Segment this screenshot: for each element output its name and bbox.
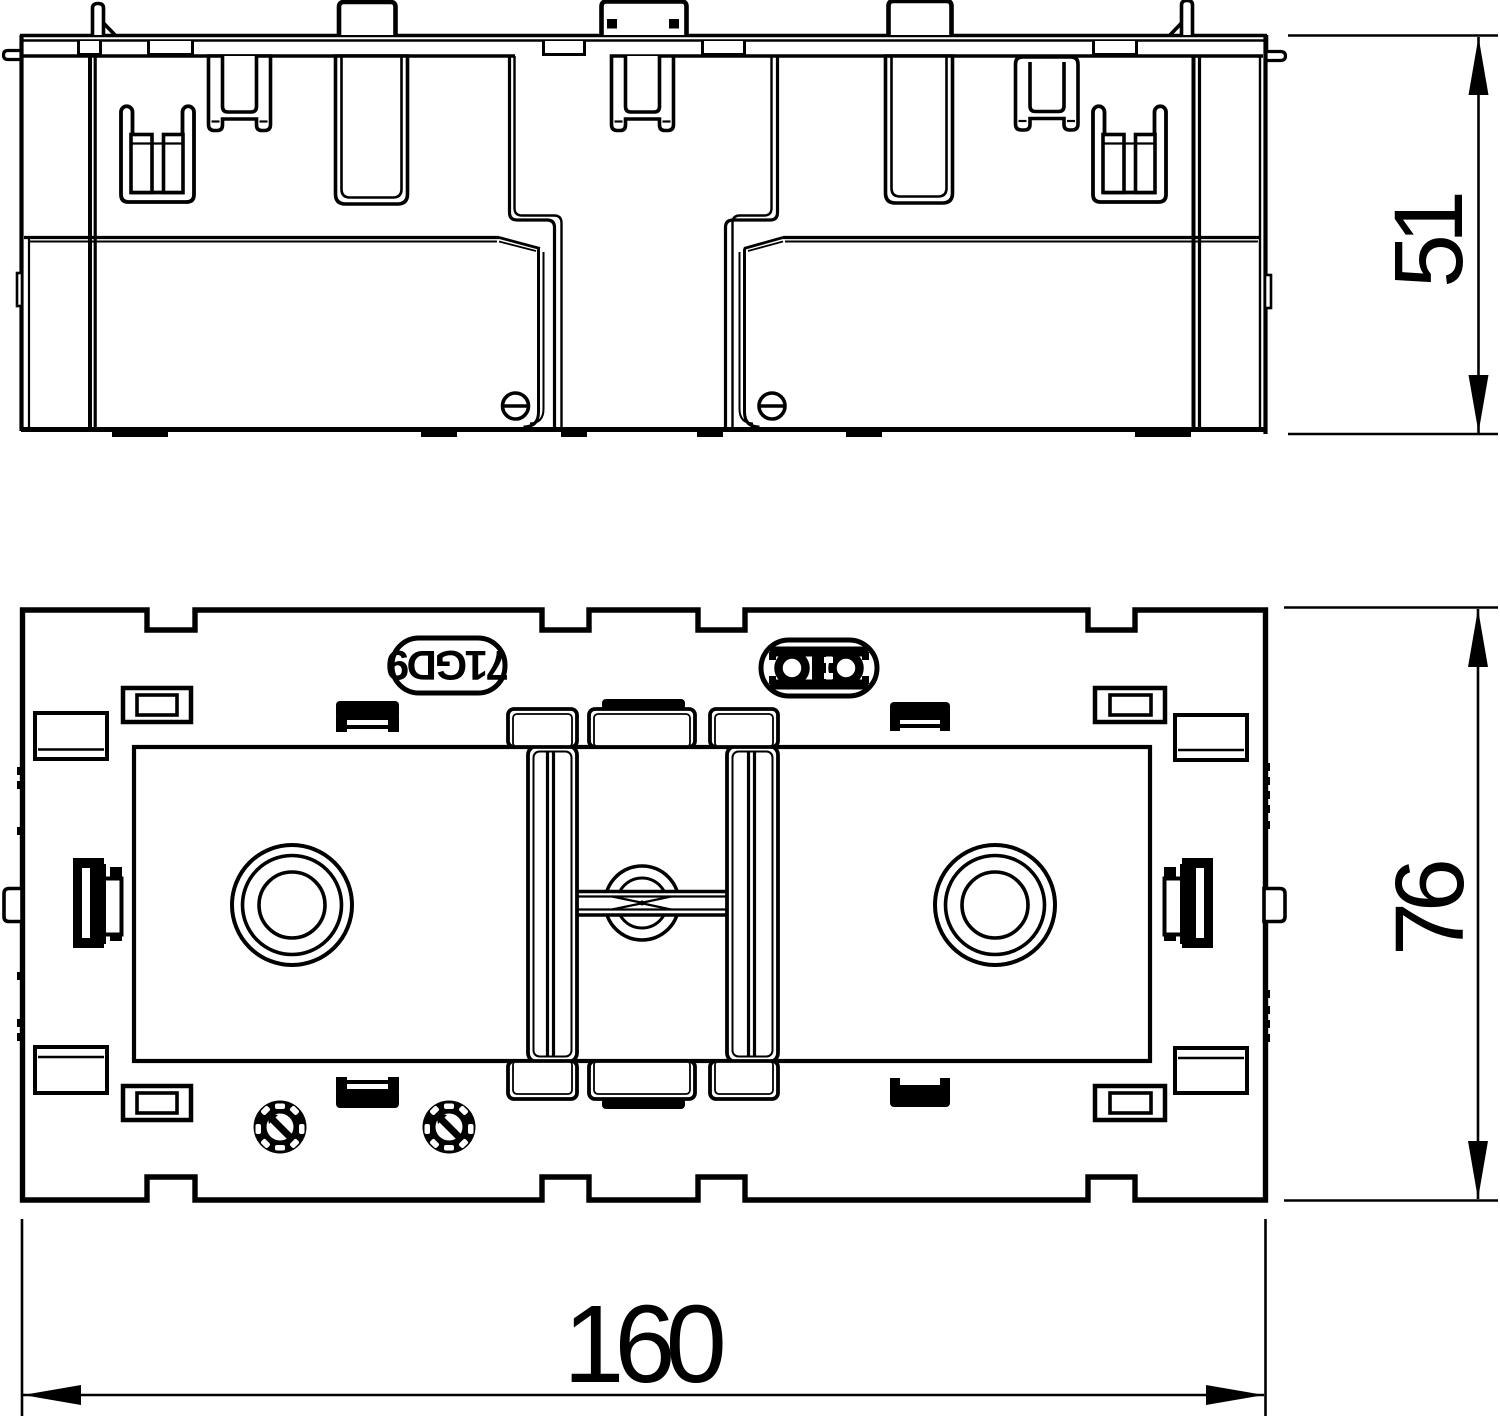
- svg-text:76: 76: [1375, 862, 1484, 956]
- svg-text:160: 160: [563, 1283, 722, 1406]
- svg-text:71GD9: 71GD9: [387, 642, 509, 689]
- svg-text:51: 51: [1374, 194, 1483, 288]
